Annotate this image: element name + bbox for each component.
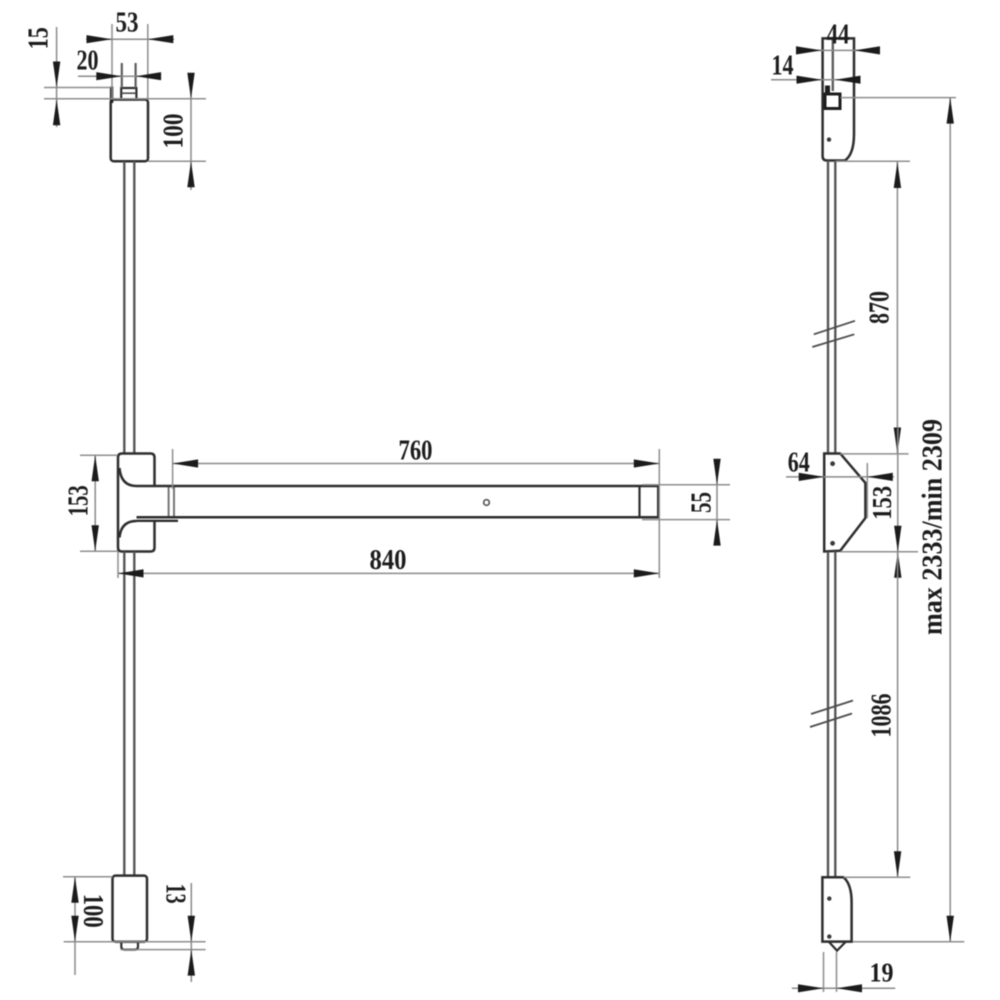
svg-text:19: 19 (870, 958, 894, 988)
svg-text:15: 15 (24, 27, 55, 49)
svg-text:14: 14 (772, 51, 794, 82)
svg-text:55: 55 (687, 492, 718, 513)
svg-text:153: 153 (63, 485, 95, 516)
svg-text:max 2333/min 2309: max 2333/min 2309 (918, 419, 949, 635)
svg-text:44: 44 (827, 20, 850, 51)
svg-text:13: 13 (160, 884, 191, 904)
svg-text:53: 53 (116, 8, 139, 39)
svg-text:870: 870 (865, 291, 896, 324)
svg-text:760: 760 (399, 435, 433, 467)
svg-text:153: 153 (867, 486, 897, 520)
svg-text:64: 64 (788, 448, 810, 479)
svg-text:100: 100 (158, 114, 190, 149)
svg-text:100: 100 (77, 894, 109, 928)
svg-text:840: 840 (370, 544, 407, 576)
svg-text:1086: 1086 (866, 694, 898, 738)
svg-text:20: 20 (77, 46, 99, 77)
